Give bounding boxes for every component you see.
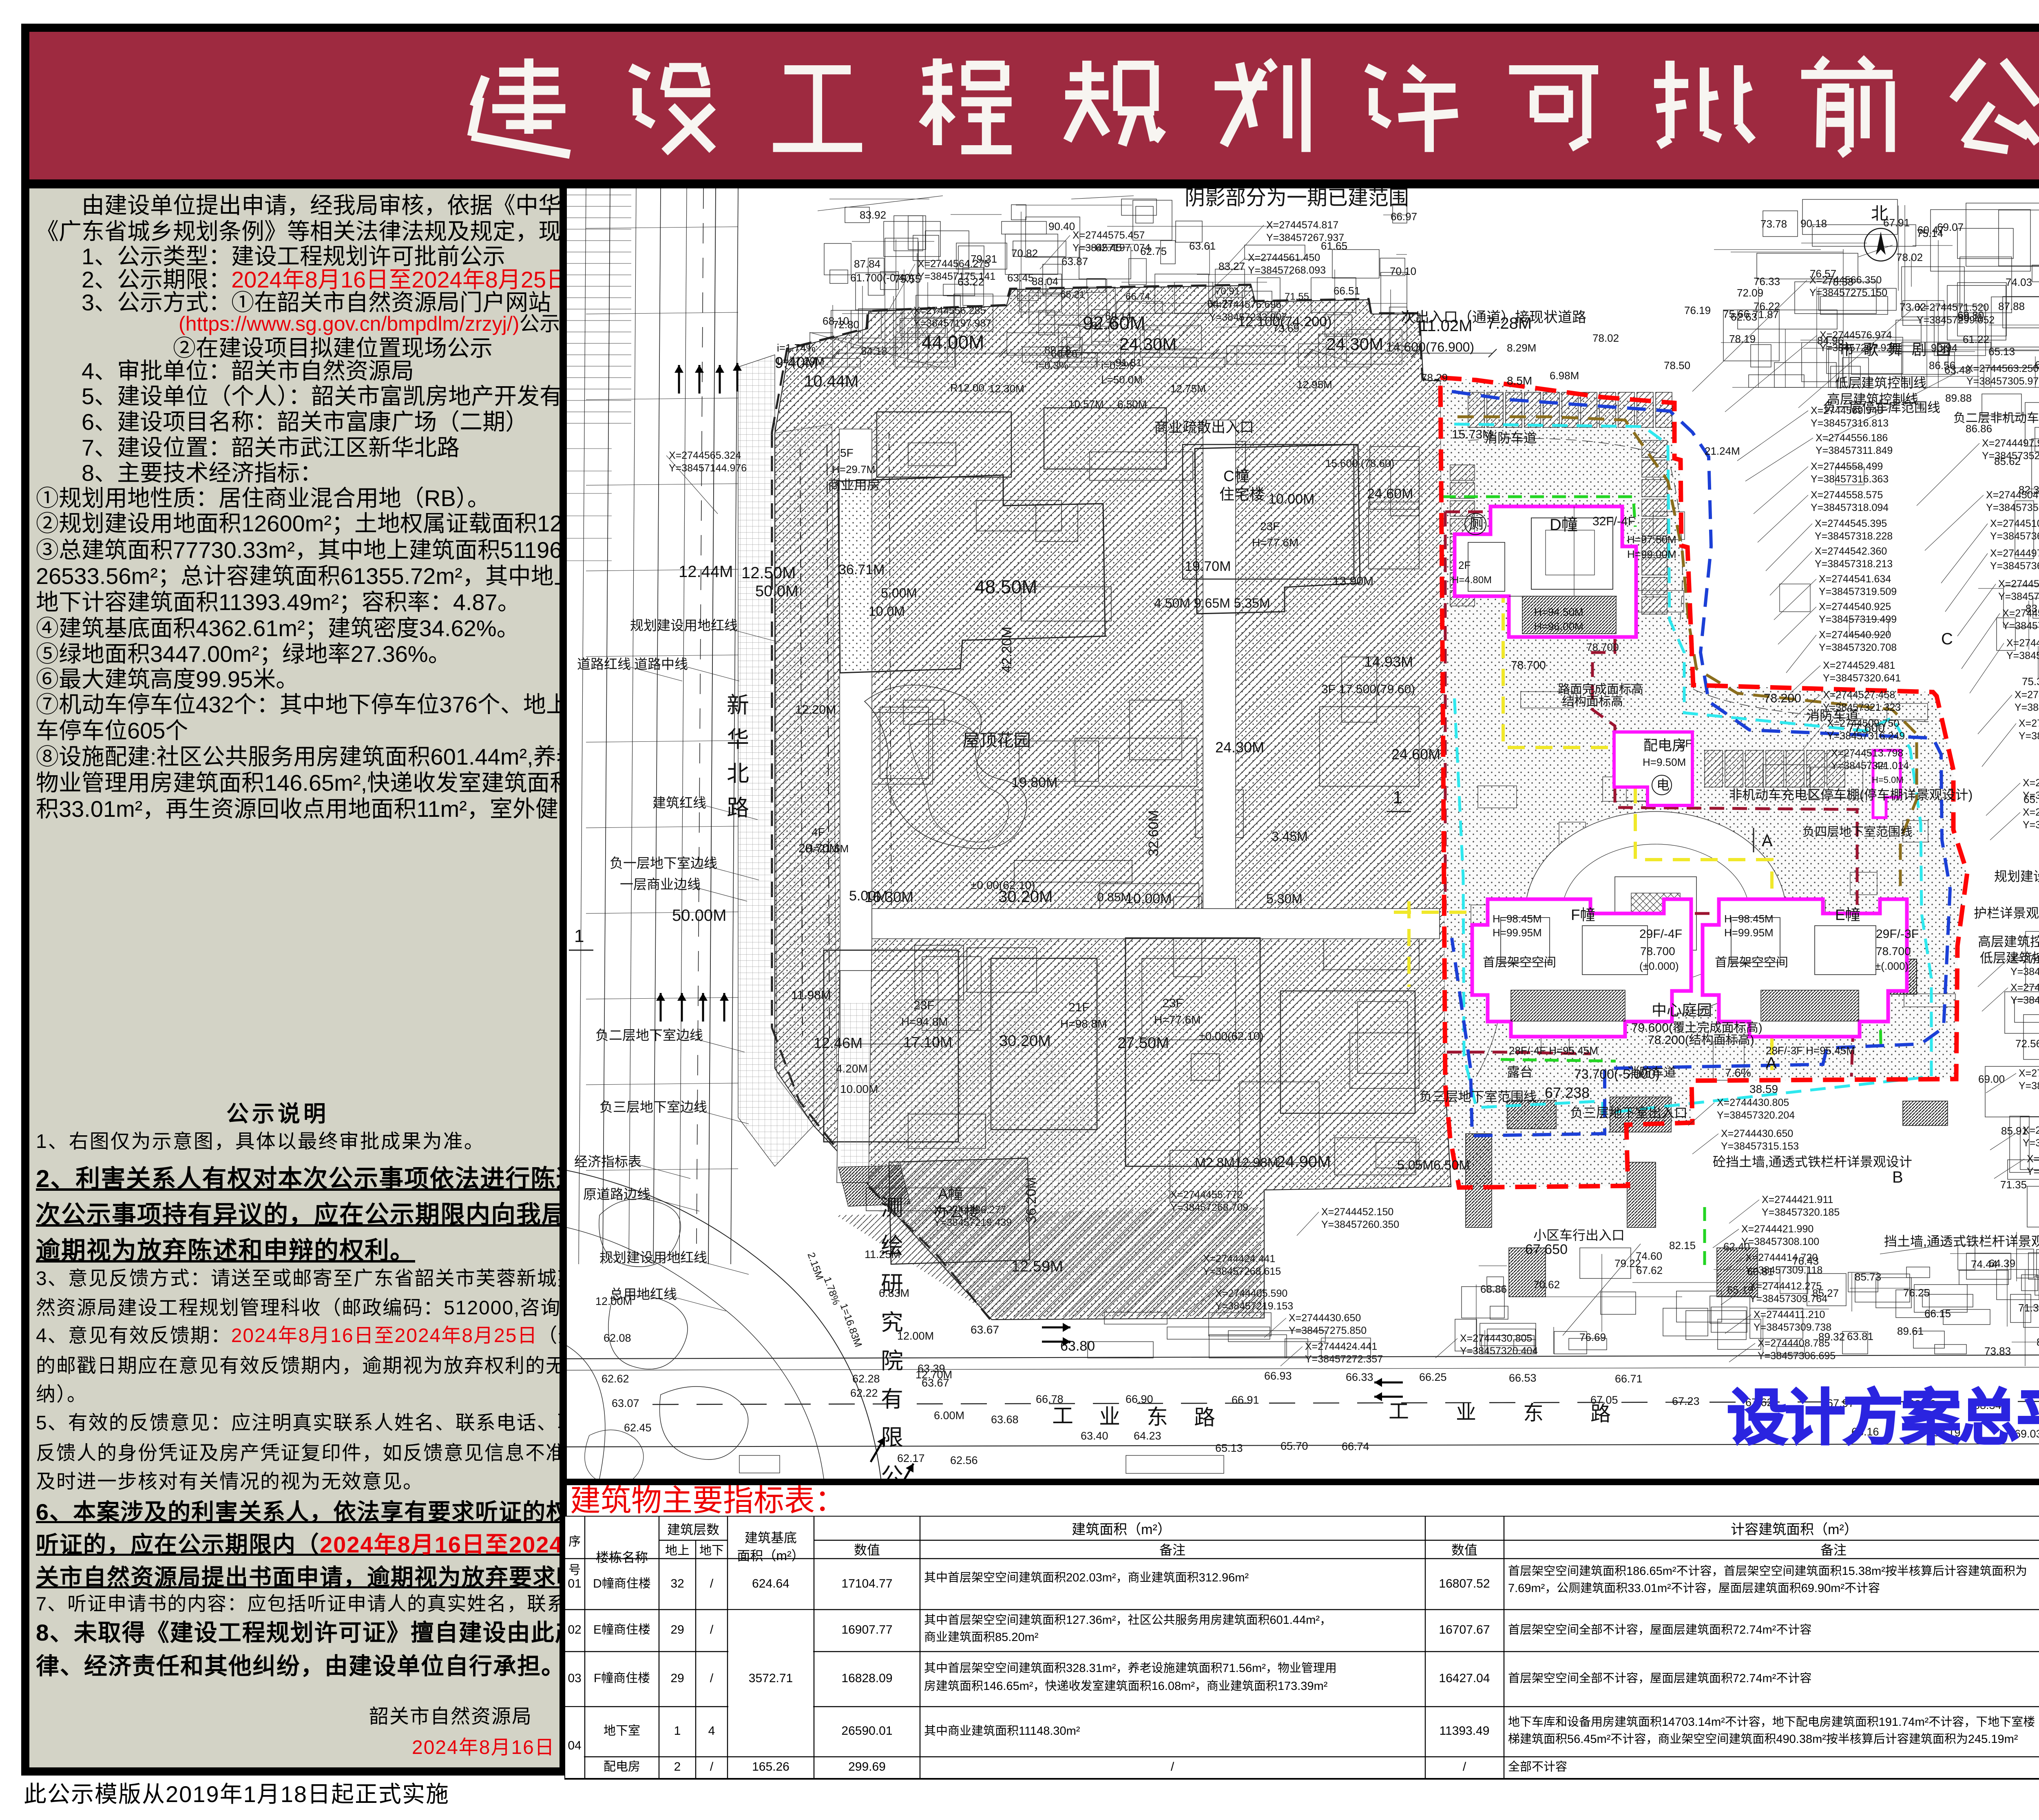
svg-text:X=2744430.404: X=2744430.404: [2023, 1125, 2039, 1136]
svg-text:61.700(-0.40): 61.700(-0.40): [850, 272, 914, 284]
svg-text:63.61: 63.61: [1189, 240, 1216, 252]
svg-text:5F: 5F: [840, 447, 854, 459]
svg-text:65.70: 65.70: [1280, 1440, 1308, 1452]
svg-text:78.700: 78.700: [1511, 659, 1546, 671]
svg-text:15.600 (78.60): 15.600 (78.60): [1325, 457, 1394, 469]
svg-text:X=2744513.798: X=2744513.798: [1831, 747, 1903, 759]
svg-text:商业用房: 商业用房: [828, 478, 880, 492]
svg-text:61.22: 61.22: [1963, 333, 1989, 345]
svg-text:Y=38457373.306: Y=38457373.306: [2015, 702, 2039, 713]
svg-text:A: A: [1766, 1054, 1777, 1072]
svg-text:Y=38457318.228: Y=38457318.228: [1815, 531, 1893, 542]
svg-text:Y=38457358.450: Y=38457358.450: [1986, 502, 2039, 513]
svg-text:65.21: 65.21: [1060, 289, 1085, 300]
svg-text:Y=38457320.204: Y=38457320.204: [1717, 1110, 1795, 1121]
svg-text:X=2744575.457: X=2744575.457: [1073, 230, 1145, 241]
svg-text:24.60M: 24.60M: [1391, 746, 1440, 763]
svg-text:78.19: 78.19: [1729, 333, 1756, 345]
svg-text:护栏详景观设计: 护栏详景观设计: [1974, 906, 2039, 920]
svg-text:12.70M: 12.70M: [916, 1369, 952, 1381]
svg-text:Y=38457373.812: Y=38457373.812: [2006, 650, 2039, 661]
svg-text:H=99.95M: H=99.95M: [1493, 927, 1542, 939]
svg-text:H=9.50M: H=9.50M: [1643, 756, 1686, 768]
svg-text:东: 东: [1147, 1406, 1168, 1429]
svg-text:商业疏散出入口: 商业疏散出入口: [1154, 420, 1254, 436]
svg-text:消防车道: 消防车道: [1807, 708, 1859, 723]
svg-text:12.44M: 12.44M: [679, 563, 733, 581]
svg-text:公: 公: [881, 1463, 903, 1479]
svg-text:76.25: 76.25: [1903, 1287, 1930, 1299]
svg-text:经济指标表: 经济指标表: [574, 1154, 641, 1169]
svg-text:X=2744421.911: X=2744421.911: [1762, 1194, 1833, 1205]
svg-text:H=99.95M: H=99.95M: [1724, 927, 1774, 939]
svg-text:负三层地下室出入口: 负三层地下室出入口: [1570, 1106, 1687, 1120]
svg-text:E幢商住楼: E幢商住楼: [593, 1623, 650, 1636]
svg-text:挡土墙,通透式铁栏杆详景观设计: 挡土墙,通透式铁栏杆详景观设计: [1884, 1234, 2039, 1249]
svg-text:Y=38457318.094: Y=38457318.094: [1811, 502, 1889, 513]
svg-text:H=4.80M: H=4.80M: [1452, 575, 1492, 586]
svg-text:70.10: 70.10: [1390, 265, 1416, 277]
svg-text:86.86: 86.86: [1966, 422, 1992, 435]
svg-text:16807.52: 16807.52: [1439, 1577, 1490, 1590]
svg-text:X=2744558.575: X=2744558.575: [1811, 489, 1883, 501]
svg-text:62.28: 62.28: [852, 1373, 880, 1385]
svg-text:R12.00: R12.00: [950, 382, 984, 394]
svg-text:D幢: D幢: [1550, 516, 1578, 534]
svg-text:X=2744540.920: X=2744540.920: [1819, 629, 1891, 641]
svg-text:89.88: 89.88: [1945, 392, 1972, 404]
svg-text:Y=38457219.153: Y=38457219.153: [1215, 1300, 1293, 1312]
svg-text:规划建设用地红线: 规划建设用地红线: [630, 618, 738, 633]
svg-text:66.51: 66.51: [1334, 285, 1360, 297]
svg-text:X=2744405.590: X=2744405.590: [1215, 1288, 1287, 1299]
svg-text:Y=38457365.050: Y=38457365.050: [2027, 1166, 2039, 1177]
svg-text:3F 17.500(79.60): 3F 17.500(79.60): [1321, 683, 1415, 696]
svg-text:X=2744452.150: X=2744452.150: [1321, 1206, 1393, 1218]
svg-text:H=99.00M: H=99.00M: [1627, 548, 1676, 560]
svg-text:H=97.50M: H=97.50M: [1627, 533, 1676, 546]
svg-text:/: /: [1171, 1760, 1174, 1774]
svg-text:Y=38457320.708: Y=38457320.708: [1819, 642, 1897, 653]
svg-text:/: /: [710, 1760, 714, 1774]
svg-text:92.60M: 92.60M: [1083, 312, 1145, 334]
svg-text:Y=38457370.510: Y=38457370.510: [2002, 620, 2039, 632]
svg-text:X=2744497.950: X=2744497.950: [1990, 548, 2039, 559]
svg-text:48.50M: 48.50M: [975, 576, 1037, 597]
svg-text:85.73: 85.73: [1855, 1271, 1881, 1283]
svg-text:4: 4: [708, 1724, 715, 1738]
svg-text:H=77.6M: H=77.6M: [1154, 1013, 1201, 1026]
svg-text:Y=38457268.709: Y=38457268.709: [1170, 1202, 1248, 1213]
svg-text:30.20M: 30.20M: [998, 888, 1053, 906]
svg-text:66.74: 66.74: [1342, 1440, 1369, 1453]
svg-text:63.68: 63.68: [991, 1413, 1019, 1426]
svg-text:90.18: 90.18: [1800, 217, 1827, 230]
svg-text:序: 序: [568, 1535, 581, 1548]
svg-text:63.87: 63.87: [1062, 255, 1088, 268]
svg-text:32: 32: [670, 1577, 684, 1590]
svg-text:Y=38457275.150: Y=38457275.150: [1809, 287, 1887, 299]
svg-text:Y=38457197.074: Y=38457197.074: [1073, 242, 1150, 254]
svg-text:阴影部分为一期已建范围: 阴影部分为一期已建范围: [1185, 188, 1409, 209]
svg-text:10.0M: 10.0M: [869, 604, 905, 619]
svg-text:工: 工: [1389, 1400, 1409, 1423]
svg-text:业: 业: [1099, 1405, 1120, 1429]
svg-text:X=2744556.186: X=2744556.186: [1816, 432, 1888, 444]
svg-text:78.200(结构面标高): 78.200(结构面标高): [1648, 1033, 1754, 1047]
svg-text:高层建筑控制线: 高层建筑控制线: [1827, 392, 1918, 407]
svg-text:Y=38457299.052: Y=38457299.052: [1917, 314, 1995, 326]
svg-text:规划建设用地红线: 规划建设用地红线: [1994, 869, 2039, 884]
svg-text:72.80: 72.80: [833, 318, 859, 331]
svg-text:13.90M: 13.90M: [1333, 575, 1373, 588]
svg-text:8.5M: 8.5M: [1507, 374, 1532, 387]
svg-text:号: 号: [568, 1563, 581, 1577]
svg-text:数值: 数值: [854, 1543, 880, 1557]
svg-text:其中首层架空空间建筑面积202.03m²，商业建筑面积312: 其中首层架空空间建筑面积202.03m²，商业建筑面积312.96m²: [924, 1571, 1249, 1584]
svg-text:一层商业边线: 一层商业边线: [620, 877, 701, 892]
svg-text:结构面标高: 结构面标高: [1562, 695, 1623, 708]
svg-text:X=2744471.647: X=2744471.647: [2023, 807, 2039, 818]
svg-text:3.45M: 3.45M: [1272, 829, 1308, 844]
svg-text:24.60M: 24.60M: [1367, 486, 1413, 502]
svg-text:62.63: 62.63: [1731, 311, 1757, 323]
svg-text:66.53: 66.53: [1509, 1372, 1537, 1384]
svg-text:82.15: 82.15: [1669, 1239, 1696, 1252]
svg-text:66.90: 66.90: [1126, 1393, 1153, 1405]
svg-text:消防车道: 消防车道: [1627, 1066, 1676, 1079]
svg-text:83.92: 83.92: [860, 209, 886, 221]
svg-text:165.26: 165.26: [752, 1760, 790, 1774]
svg-text:原道路边线: 原道路边线: [583, 1187, 650, 1202]
svg-text:建筑红线: 建筑红线: [652, 795, 706, 810]
svg-text:10.00M: 10.00M: [1126, 891, 1172, 907]
svg-text:63.67: 63.67: [971, 1323, 999, 1336]
svg-text:Y=38457315.153: Y=38457315.153: [1721, 1141, 1799, 1152]
svg-text:16.30M: 16.30M: [865, 889, 913, 905]
svg-text:67.238: 67.238: [1545, 1084, 1590, 1101]
svg-text:62.22: 62.22: [850, 1387, 878, 1399]
svg-text:76.69: 76.69: [1579, 1331, 1606, 1343]
svg-text:X=2744545.395: X=2744545.395: [1815, 518, 1887, 529]
svg-text:路: 路: [1194, 1406, 1215, 1430]
svg-text:5.05M6.50M: 5.05M6.50M: [1397, 1158, 1470, 1172]
svg-text:首层架空空间建筑面积186.65m²不计容，首层架空空间建筑: 首层架空空间建筑面积186.65m²不计容，首层架空空间建筑面积15.38m²按…: [1508, 1564, 2027, 1578]
svg-text:66.33: 66.33: [1346, 1371, 1373, 1383]
svg-text:i=0.3%: i=0.3%: [1036, 359, 1068, 372]
svg-text:5.00M: 5.00M: [881, 586, 917, 600]
svg-text:负四层地下室范围线: 负四层地下室范围线: [1802, 825, 1913, 839]
svg-text:E幢: E幢: [1835, 907, 1860, 923]
svg-text:23F: 23F: [1162, 997, 1183, 1010]
svg-text:68.86: 68.86: [1480, 1283, 1507, 1295]
svg-text:16427.04: 16427.04: [1439, 1672, 1490, 1685]
svg-text:50.0M: 50.0M: [755, 583, 798, 600]
svg-text:19.80M: 19.80M: [1011, 775, 1057, 790]
svg-text:Y=38457268.615: Y=38457268.615: [1203, 1266, 1281, 1277]
svg-text:64.39: 64.39: [1989, 1257, 2015, 1269]
svg-text:66.93: 66.93: [1264, 1370, 1292, 1382]
svg-text:4.50M 9.65M 5.35M: 4.50M 9.65M 5.35M: [1154, 596, 1270, 610]
svg-text:X=2744563.250: X=2744563.250: [1966, 363, 2039, 374]
svg-text:X=2744510.499: X=2744510.499: [1990, 518, 2039, 529]
svg-text:负二层地下室边线: 负二层地下室边线: [595, 1028, 703, 1043]
svg-text:面积（m²）: 面积（m²）: [737, 1548, 804, 1563]
svg-text:16828.09: 16828.09: [841, 1672, 892, 1685]
svg-text:90.40: 90.40: [1048, 220, 1075, 232]
svg-text:道路红线: 道路红线: [577, 657, 631, 672]
svg-text:Y=38457374.005: Y=38457374.005: [2019, 1080, 2039, 1092]
svg-text:X=2744558.499: X=2744558.499: [1811, 461, 1883, 472]
svg-text:02: 02: [568, 1623, 581, 1636]
svg-text:低层建筑控制线: 低层建筑控制线: [1980, 951, 2039, 965]
svg-text:X=2744488.359: X=2744488.359: [2019, 718, 2039, 729]
svg-text:Y=38457309.118: Y=38457309.118: [1745, 1265, 1822, 1276]
svg-text:74.03: 74.03: [2006, 276, 2032, 288]
svg-text:8.29M: 8.29M: [1507, 342, 1536, 354]
svg-text:X=2744561.450: X=2744561.450: [1248, 252, 1320, 263]
svg-text:X=2744576.974: X=2744576.974: [1820, 330, 1892, 341]
svg-text:梯建筑面积56.45m²不计容，商业架空空间建筑面积490.: 梯建筑面积56.45m²不计容，商业架空空间建筑面积490.38m²按半核算后计…: [1508, 1732, 2018, 1746]
svg-text:Y=38457316.363: Y=38457316.363: [1811, 473, 1889, 485]
svg-text:X=2744542.360: X=2744542.360: [1815, 546, 1887, 557]
svg-text:12.30M: 12.30M: [989, 383, 1024, 395]
svg-text:X=2744424.441: X=2744424.441: [1305, 1341, 1377, 1352]
svg-text:78.700: 78.700: [1640, 945, 1675, 958]
svg-text:露台: 露台: [1507, 1065, 1533, 1079]
svg-text:78.29: 78.29: [1421, 372, 1448, 384]
svg-text:70.82: 70.82: [1011, 247, 1038, 259]
svg-text:04: 04: [568, 1739, 581, 1752]
svg-text:12.20M: 12.20M: [795, 703, 836, 717]
svg-text:X=2744574.817: X=2744574.817: [1266, 219, 1338, 231]
svg-text:Y=38457370.391: Y=38457370.391: [1998, 591, 2039, 602]
svg-text:36.71M: 36.71M: [838, 562, 885, 577]
svg-text:H=29.7M: H=29.7M: [832, 463, 875, 475]
svg-text:73.78: 73.78: [1760, 218, 1787, 230]
svg-text:X=2744436.050: X=2744436.050: [2027, 1153, 2039, 1165]
svg-text:X=2744474.334: X=2744474.334: [2023, 777, 2039, 789]
svg-text:70.91: 70.91: [1215, 286, 1240, 297]
svg-text:71.30: 71.30: [2018, 1302, 2039, 1314]
svg-text:12.75M: 12.75M: [1170, 383, 1206, 395]
svg-text:首层架空空间: 首层架空空间: [1483, 956, 1556, 969]
svg-text:X=2744455.772: X=2744455.772: [1170, 1189, 1243, 1201]
svg-text:10.00M: 10.00M: [1268, 491, 1314, 507]
svg-text:Y=38457377.543: Y=38457377.543: [2019, 730, 2039, 742]
svg-text:H=5.0M: H=5.0M: [1872, 775, 1904, 785]
svg-text:66.71: 66.71: [1615, 1373, 1643, 1385]
svg-text:X=2744571.520: X=2744571.520: [1917, 302, 1989, 313]
svg-text:71.35: 71.35: [2000, 1179, 2027, 1191]
svg-text:16907.77: 16907.77: [841, 1623, 892, 1636]
svg-text:数值: 数值: [1451, 1543, 1477, 1557]
svg-text:首层架空空间全部不计容，屋面层建筑面积72.74m²不计容: 首层架空空间全部不计容，屋面层建筑面积72.74m²不计容: [1508, 1623, 1811, 1636]
svg-text:华: 华: [727, 727, 749, 752]
svg-text:7.6%: 7.6%: [1725, 1066, 1751, 1079]
svg-text:X=2744408.785: X=2744408.785: [1758, 1338, 1830, 1349]
svg-text:X=2744564.275: X=2744564.275: [918, 258, 990, 270]
svg-text:F幢: F幢: [1571, 907, 1595, 923]
svg-text:63.07: 63.07: [612, 1397, 639, 1409]
svg-text:业: 业: [1456, 1401, 1476, 1424]
svg-text:Y=38457175.141: Y=38457175.141: [918, 271, 995, 282]
svg-text:62.62: 62.62: [602, 1373, 629, 1385]
svg-text:Y=38457316.249: Y=38457316.249: [1827, 730, 1905, 742]
svg-text:75.35: 75.35: [2022, 675, 2039, 688]
svg-text:X=2744411.210: X=2744411.210: [1754, 1309, 1825, 1320]
svg-text:65.13: 65.13: [1988, 345, 2015, 358]
svg-text:Y=38457305.976: Y=38457305.976: [1966, 376, 2039, 387]
svg-text:17104.77: 17104.77: [841, 1577, 892, 1590]
svg-text:/: /: [710, 1577, 714, 1590]
svg-text:299.69: 299.69: [848, 1760, 886, 1774]
svg-text:50.00M: 50.00M: [672, 907, 726, 924]
svg-text:楼栋名称: 楼栋名称: [596, 1550, 648, 1565]
svg-text:63.45: 63.45: [1007, 272, 1034, 284]
svg-text:7.69m²，公厕建筑面积33.01m²不计容，屋面层建筑面: 7.69m²，公厕建筑面积33.01m²不计容，屋面层建筑面积69.90m²不计…: [1508, 1581, 1880, 1595]
svg-text:76.19: 76.19: [1684, 304, 1711, 316]
svg-text:X=2744541.634: X=2744541.634: [1819, 573, 1891, 585]
svg-text:Y=38457272.357: Y=38457272.357: [1305, 1353, 1383, 1365]
svg-text:房建筑面积146.65m²，快递收发室建筑面积16.08m²: 房建筑面积146.65m²，快递收发室建筑面积16.08m²，商业建筑面积173…: [924, 1679, 1328, 1693]
svg-text:Y=38457321.014: Y=38457321.014: [1831, 760, 1909, 772]
svg-text:79.600(覆土完成面标高): 79.600(覆土完成面标高): [1631, 1021, 1763, 1035]
svg-text:X=2744421.990: X=2744421.990: [1741, 1223, 1813, 1235]
svg-text:62.45: 62.45: [624, 1422, 652, 1434]
svg-text:负三层地下室范围线: 负三层地下室范围线: [1419, 1089, 1537, 1104]
svg-text:5.30M: 5.30M: [1266, 891, 1303, 906]
svg-text:66.97: 66.97: [1391, 210, 1417, 223]
svg-text:配电房: 配电房: [604, 1760, 640, 1774]
svg-text:X=2744430.805: X=2744430.805: [1717, 1097, 1789, 1108]
svg-text:路面完成面标高: 路面完成面标高: [1558, 683, 1643, 696]
svg-text:6.98M: 6.98M: [1550, 369, 1579, 382]
svg-text:X=2744414.720: X=2744414.720: [1745, 1252, 1818, 1263]
svg-text:F幢商住楼: F幢商住楼: [594, 1672, 650, 1685]
svg-text:62.08: 62.08: [604, 1332, 631, 1344]
svg-text:Y=38457316.813: Y=38457316.813: [1811, 418, 1889, 429]
svg-text:地下: 地下: [699, 1544, 724, 1557]
svg-text:H=98.45M: H=98.45M: [1724, 913, 1774, 925]
svg-text:L=50.0M: L=50.0M: [1101, 374, 1143, 386]
svg-text:电: 电: [1656, 778, 1670, 792]
svg-text:备注: 备注: [1820, 1543, 1847, 1557]
svg-text:其中首层架空空间建筑面积328.31m²，养老设施建筑面积7: 其中首层架空空间建筑面积328.31m²，养老设施建筑面积71.56m²，物业管…: [924, 1661, 1337, 1675]
svg-text:78.200: 78.200: [1764, 692, 1801, 705]
svg-text:2F: 2F: [1458, 559, 1471, 571]
svg-text:Y=38457260.350: Y=38457260.350: [1321, 1219, 1399, 1230]
svg-text:89.61: 89.61: [1897, 1325, 1924, 1337]
svg-text:砼挡土墙,通透式铁栏杆详景观设计: 砼挡土墙,通透式铁栏杆详景观设计: [1713, 1154, 1912, 1169]
svg-text:66.25: 66.25: [1419, 1371, 1447, 1383]
svg-text:78.50: 78.50: [1664, 359, 1690, 372]
svg-text:66.91: 66.91: [1232, 1394, 1259, 1406]
svg-text:/: /: [710, 1672, 714, 1685]
svg-text:X=2744509.614: X=2744509.614: [1998, 578, 2039, 590]
svg-text:H=98.45M: H=98.45M: [1493, 913, 1542, 925]
svg-text:42.20M: 42.20M: [999, 627, 1015, 673]
svg-text:1: 1: [1393, 787, 1402, 807]
svg-text:78.02: 78.02: [1896, 251, 1923, 263]
svg-text:X=2744529.481: X=2744529.481: [1823, 660, 1895, 671]
svg-text:Y=38457308.100: Y=38457308.100: [1741, 1236, 1819, 1247]
svg-text:X=2744457.450: X=2744457.450: [2010, 982, 2039, 993]
svg-text:62.17: 62.17: [897, 1452, 925, 1464]
svg-text:11.25M: 11.25M: [865, 1248, 900, 1261]
svg-text:Y=38457363.650: Y=38457363.650: [1990, 560, 2039, 572]
svg-text:H=98.8M: H=98.8M: [1060, 1017, 1107, 1030]
svg-text:路: 路: [727, 795, 749, 820]
svg-text:6.00M: 6.00M: [934, 1409, 964, 1422]
svg-text:78.700: 78.700: [1586, 641, 1619, 653]
svg-text:X=2744488.645: X=2744488.645: [2015, 689, 2039, 701]
svg-text:道路中线: 道路中线: [634, 657, 688, 672]
svg-text:小区车行出入口: 小区车行出入口: [1533, 1228, 1625, 1243]
svg-text:B: B: [1892, 1168, 1903, 1186]
svg-text:Y=38457376.247: Y=38457376.247: [2023, 819, 2039, 831]
svg-text:67.650: 67.650: [1525, 1242, 1568, 1257]
svg-text:12.95M: 12.95M: [1297, 378, 1332, 391]
svg-text:D幢商住楼: D幢商住楼: [593, 1577, 651, 1590]
svg-text:24.30M: 24.30M: [1326, 334, 1383, 354]
svg-text:Y=38457365.050: Y=38457365.050: [2010, 995, 2039, 1006]
svg-text:76.22: 76.22: [1754, 300, 1780, 312]
svg-text:高层建筑控制线: 高层建筑控制线: [1978, 934, 2039, 949]
svg-text:厕: 厕: [1469, 516, 1484, 532]
svg-text:Y=38457320.404: Y=38457320.404: [1460, 1345, 1538, 1357]
svg-text:16707.67: 16707.67: [1439, 1623, 1490, 1636]
svg-text:X=2744497.950: X=2744497.950: [1982, 438, 2039, 449]
svg-text:C幢: C幢: [1223, 468, 1249, 484]
svg-text:X=2744540.925: X=2744540.925: [1819, 601, 1891, 613]
svg-text:X=2744556.285: X=2744556.285: [913, 305, 986, 316]
svg-text:Y=38457233.907: Y=38457233.907: [1209, 312, 1287, 323]
svg-text:65.13: 65.13: [1215, 1442, 1243, 1454]
svg-text:64.23: 64.23: [1134, 1430, 1161, 1442]
svg-text:2: 2: [674, 1760, 681, 1774]
svg-text:44.00M: 44.00M: [922, 332, 984, 353]
svg-text:X=2744502.859: X=2744502.859: [2006, 637, 2039, 649]
svg-text:M2.8M12.98M: M2.8M12.98M: [1195, 1155, 1278, 1170]
svg-text:86.56: 86.56: [1929, 359, 1955, 372]
svg-text:建筑层数: 建筑层数: [667, 1522, 719, 1537]
svg-text:29F/-3F: 29F/-3F: [1876, 927, 1919, 941]
svg-text:首层架空空间: 首层架空空间: [1715, 956, 1788, 969]
svg-text:Y=38457318.213: Y=38457318.213: [1815, 558, 1893, 570]
svg-text:Y=38457319.509: Y=38457319.509: [1819, 586, 1897, 597]
svg-text:75.14: 75.14: [1917, 227, 1943, 239]
svg-text:非机动车充电区停车棚(停车棚详景观设计): 非机动车充电区停车棚(停车棚详景观设计): [1729, 787, 1973, 802]
svg-text:3572.71: 3572.71: [749, 1672, 793, 1685]
svg-text:院: 院: [881, 1348, 903, 1373]
svg-text:Y=38457311.849: Y=38457311.849: [1816, 445, 1893, 456]
svg-text:11.98M: 11.98M: [791, 989, 831, 1002]
svg-text:01: 01: [568, 1577, 581, 1590]
svg-text:21.24M: 21.24M: [1705, 445, 1740, 457]
svg-text:12.50M: 12.50M: [741, 564, 796, 582]
svg-text:Y=38457309.764: Y=38457309.764: [1749, 1293, 1827, 1305]
svg-text:03: 03: [568, 1672, 581, 1685]
svg-text:Y=38457319.499: Y=38457319.499: [1819, 614, 1897, 625]
svg-text:27.50M: 27.50M: [1117, 1035, 1169, 1052]
svg-text:X=2744430.650: X=2744430.650: [1721, 1128, 1793, 1139]
svg-text:(±0.000): (±0.000): [1639, 960, 1679, 972]
svg-text:Y=38457309.738: Y=38457309.738: [1754, 1322, 1831, 1333]
svg-text:Y=38457268.093: Y=38457268.093: [1248, 265, 1326, 276]
svg-text:24.30M: 24.30M: [1215, 739, 1264, 756]
svg-text:X=2744430.805: X=2744430.805: [1460, 1333, 1532, 1344]
